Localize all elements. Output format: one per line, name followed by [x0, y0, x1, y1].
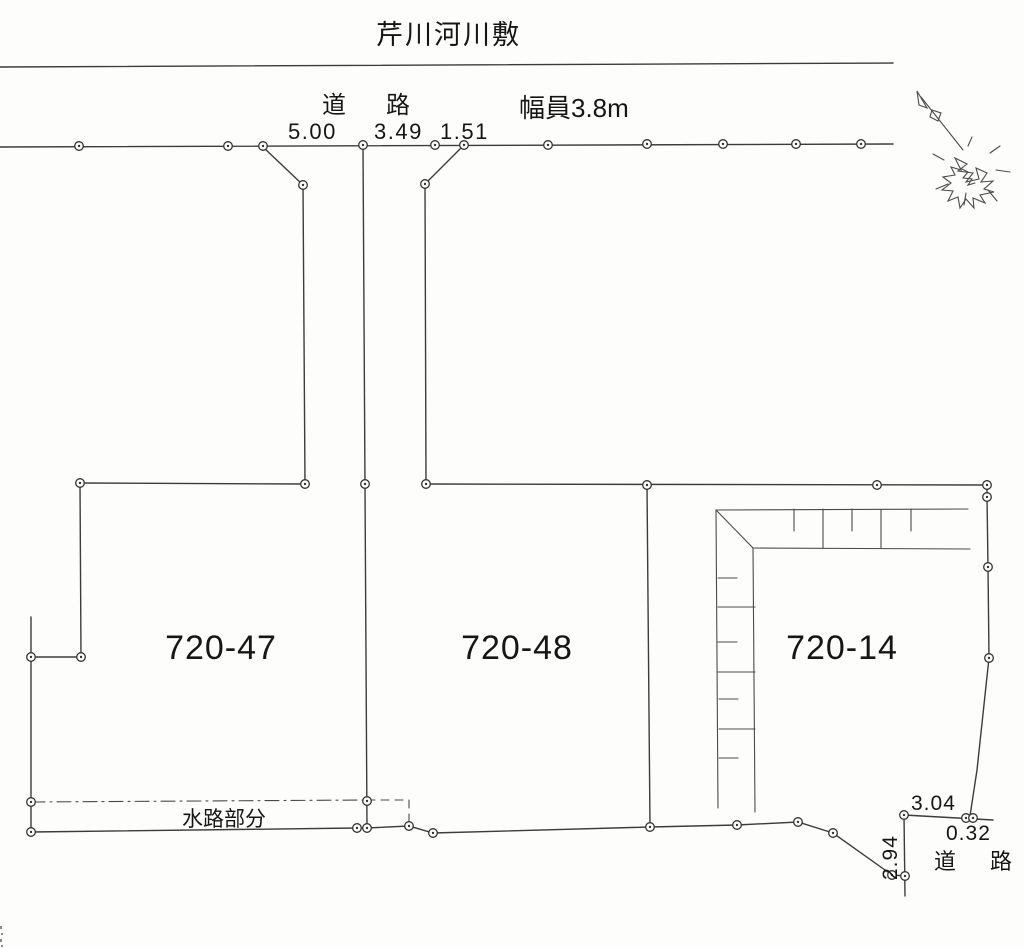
survey-point — [984, 563, 993, 572]
dim-1-51: 1.51 — [440, 119, 489, 144]
survey-point — [301, 480, 310, 489]
survey-point — [857, 140, 866, 149]
survey-point — [77, 653, 86, 662]
survey-point — [224, 142, 233, 151]
survey-point — [873, 481, 882, 490]
top-road-label: 道 路 — [322, 92, 418, 119]
survey-point — [733, 821, 742, 830]
waterway-label: 水路部分 — [182, 808, 266, 831]
survey-point — [431, 141, 440, 150]
dim-2-94: 2.94 — [879, 835, 902, 880]
survey-point — [643, 481, 652, 490]
survey-point — [361, 480, 370, 489]
dim-3-49: 3.49 — [374, 119, 423, 144]
survey-point — [544, 141, 553, 150]
scan-artifact — [0, 926, 3, 947]
river-bank-line — [0, 63, 893, 67]
survey-point — [75, 142, 84, 151]
survey-point — [363, 824, 372, 833]
parcel-label-720-48: 720-48 — [461, 629, 573, 667]
survey-point — [719, 140, 728, 149]
survey-point — [299, 181, 308, 190]
survey-point — [353, 824, 362, 833]
survey-point — [27, 798, 36, 807]
survey-point — [259, 142, 268, 151]
survey-point — [985, 654, 994, 663]
survey-point — [646, 823, 655, 832]
survey-point — [359, 141, 368, 150]
survey-point — [421, 180, 430, 189]
top-road-line — [0, 144, 893, 147]
dim-0-32: 0.32 — [946, 822, 991, 845]
survey-point — [27, 653, 36, 662]
river-bank-title: 芹川河川敷 — [376, 20, 521, 50]
survey-point — [983, 493, 992, 502]
survey-point — [27, 828, 36, 837]
parcel-boundaries — [31, 145, 993, 896]
survey-point — [76, 479, 85, 488]
survey-point — [405, 822, 414, 831]
dim-3-04: 3.04 — [911, 792, 956, 815]
survey-point — [363, 797, 372, 806]
bottom-road-label: 道 路 — [934, 849, 1018, 874]
cadastral-survey-map: 芹川河川敷 道 路 幅員3.8m 5.00 3.49 1.51 720-47 7… — [0, 0, 1024, 948]
survey-point — [422, 480, 431, 489]
survey-point — [429, 829, 438, 838]
survey-point — [643, 140, 652, 149]
survey-point — [900, 811, 909, 820]
parcel-label-720-47: 720-47 — [165, 629, 277, 667]
survey-point — [969, 814, 978, 823]
dim-5-00: 5.00 — [288, 119, 337, 144]
survey-point — [794, 818, 803, 827]
survey-drawing: 芹川河川敷 道 路 幅員3.8m 5.00 3.49 1.51 720-47 7… — [0, 0, 1024, 948]
road-width-label: 幅員3.8m — [519, 93, 629, 123]
survey-point — [829, 829, 838, 838]
north-arrow-icon — [917, 91, 1010, 208]
parcel-label-720-14: 720-14 — [786, 629, 898, 667]
survey-point — [983, 481, 992, 490]
survey-point — [792, 140, 801, 149]
